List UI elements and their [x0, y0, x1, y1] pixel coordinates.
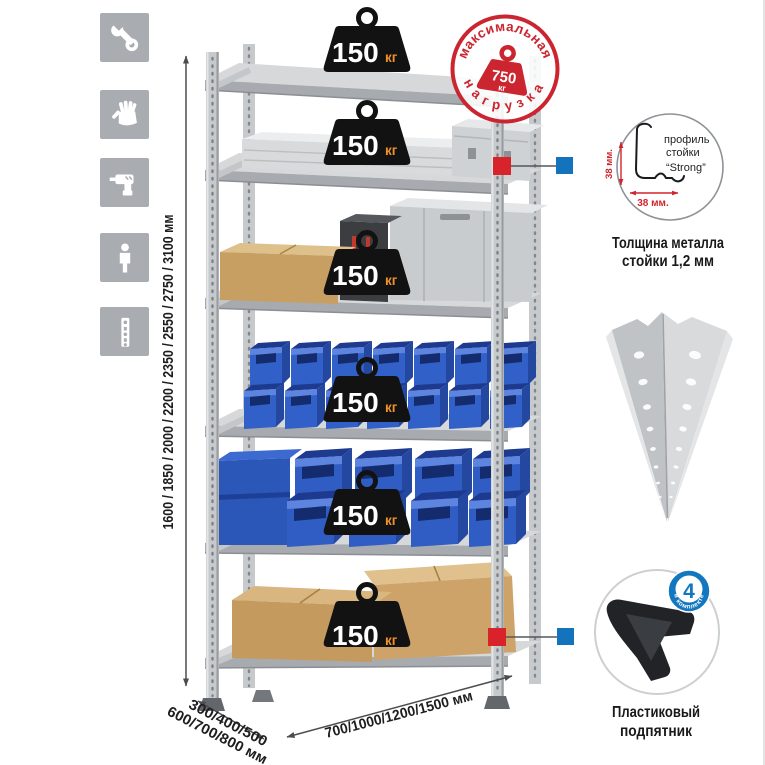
red-marker-square — [488, 628, 506, 646]
storage-bin — [455, 341, 495, 387]
width-dimension: 700/1000/1200/1500 мм — [287, 676, 512, 742]
storage-bin — [291, 341, 331, 387]
badge-count: 4 — [683, 580, 695, 603]
weight-value: 150 — [332, 130, 379, 161]
post-foot — [252, 690, 274, 702]
max-load-stamp: максимальная нагрузка 750 кг — [453, 17, 558, 122]
product-infographic: 150кг 150кг 150кг 150кг 150кг — [0, 0, 765, 765]
storage-bin — [285, 383, 325, 429]
foot-caption-2: подпятник — [620, 723, 692, 740]
shelving-diagram: 150кг 150кг 150кг 150кг 150кг — [0, 0, 765, 765]
weight-value: 150 — [332, 387, 379, 418]
weight-value: 150 — [332, 500, 379, 531]
post-foot — [484, 696, 510, 709]
storage-bin — [408, 383, 448, 429]
profile-label-3: “Strong” — [666, 162, 706, 174]
profile-caption-2: стойки 1,2 мм — [622, 253, 714, 270]
profile-detail: 38 мм. 38 мм. профиль стойки “Strong” То… — [604, 114, 724, 270]
weight-unit: кг — [385, 50, 398, 65]
storage-bin — [449, 383, 489, 429]
included-count-badge: 4 в комплекте — [668, 570, 710, 612]
weight-unit: кг — [385, 143, 398, 158]
profile-caption-1: Толщина металла — [612, 235, 724, 252]
blue-marker-square — [556, 157, 573, 174]
height-dimension-label: 1600 / 1850 / 2000 / 2200 / 2350 / 2550 … — [161, 215, 177, 530]
angle-post-image — [606, 312, 733, 522]
weight-unit: кг — [385, 273, 398, 288]
storage-bin — [411, 490, 468, 547]
weight-unit: кг — [385, 513, 398, 528]
weight-value: 150 — [332, 620, 379, 651]
weight-unit: кг — [385, 400, 398, 415]
red-marker-square — [493, 157, 511, 175]
width-dimension-label: 700/1000/1200/1500 мм — [323, 688, 474, 742]
storage-bin — [414, 341, 454, 387]
height-dimension: 1600 / 1850 / 2000 / 2200 / 2350 / 2550 … — [161, 56, 186, 686]
profile-dim-horizontal: 38 мм. — [637, 198, 669, 209]
profile-label-2: стойки — [666, 147, 700, 159]
weight-badge: 150кг — [324, 103, 411, 166]
weight-value: 150 — [332, 37, 379, 68]
weight-value: 150 — [332, 260, 379, 291]
storage-bin — [244, 383, 284, 429]
foot-caption-1: Пластиковый — [612, 704, 700, 721]
storage-bin — [250, 341, 290, 387]
weight-badge: 150кг — [324, 10, 411, 73]
weight-unit: кг — [385, 633, 398, 648]
profile-dim-vertical: 38 мм. — [604, 149, 615, 179]
plastic-foot-detail: 4 в комплекте Пластиковый подпятник — [595, 570, 719, 740]
profile-label-1: профиль — [664, 134, 710, 146]
blue-marker-square — [557, 628, 574, 645]
